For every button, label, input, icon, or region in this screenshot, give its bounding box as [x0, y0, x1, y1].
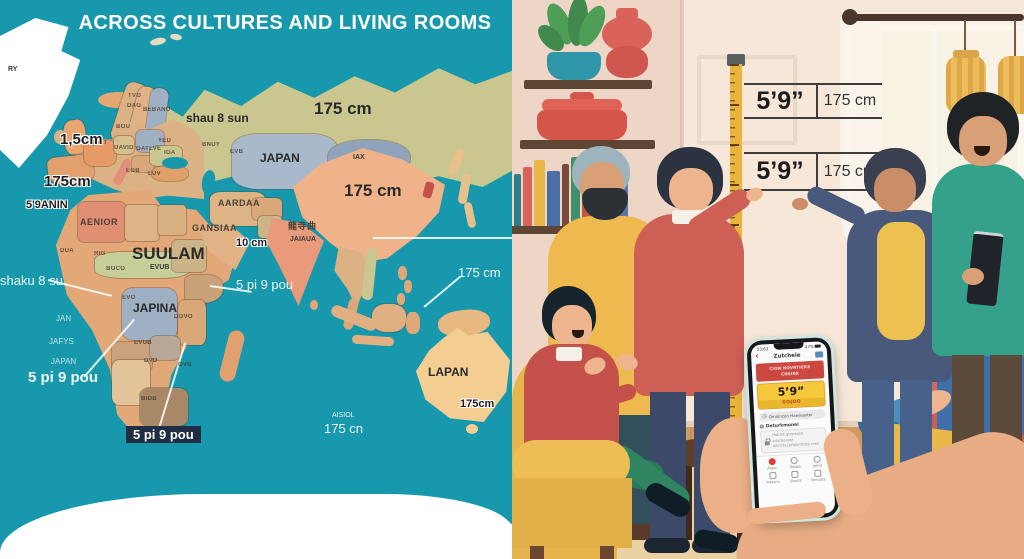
map-label: shaku 8 su	[0, 274, 63, 287]
reminder-text: Omainzen Haeseaster	[769, 412, 813, 419]
map-label: 175 cm	[314, 100, 372, 117]
woman-red-shoe	[644, 538, 690, 553]
clock-icon: ◷	[762, 414, 767, 419]
map-label: 175 cn	[324, 422, 363, 435]
map-label: RY	[8, 66, 17, 73]
map-label: AISIOL	[332, 412, 355, 419]
woman-red-face	[669, 168, 713, 212]
battery-icon	[815, 344, 821, 347]
map-micro-label: EVUB	[134, 340, 152, 346]
phone-nav-item[interactable]: Sleccats	[807, 469, 830, 482]
woman-blue-top	[877, 222, 925, 340]
map-micro-label: TVO	[128, 93, 141, 99]
info-card-text: Hokste gureaxert srtvrtiocete olknvbsj p…	[772, 431, 823, 450]
landmass-africa-patch	[158, 205, 186, 235]
phone-nav-icon	[769, 472, 776, 479]
map-micro-label: DAG	[127, 103, 141, 109]
map-micro-label: IGA	[164, 150, 176, 156]
landmass-philippines	[404, 280, 412, 293]
map-micro-label: EVB	[230, 149, 243, 155]
phone-frame: 13:63 47% ‹ Zutcheie CION NOVRTIERS CNSI…	[746, 337, 839, 521]
phone-nav-label: Ritasrin	[762, 479, 785, 484]
map-label: AENIOR	[80, 218, 118, 227]
seated-collar	[556, 347, 582, 361]
height-feet-label: 5’9”	[744, 157, 816, 186]
map-micro-label: BIDB	[141, 396, 157, 402]
map-micro-label: DVD	[144, 358, 158, 364]
map-micro-label: GATLVE	[136, 146, 161, 152]
armchair-base	[512, 478, 632, 548]
map-label: SUULAM	[132, 245, 205, 262]
landmass-philippines	[397, 293, 405, 305]
map-micro-label: LUV	[148, 171, 161, 177]
map-micro-label: OVB	[178, 362, 192, 368]
map-label: 1,5cm	[60, 132, 103, 147]
phone-nav-label: Sleccats	[807, 477, 830, 482]
lock-icon	[765, 441, 770, 445]
info-card[interactable]: Hokste gureaxert srtvrtiocete olknvbsj p…	[760, 427, 827, 454]
phone-nav-item[interactable]: Aracn	[761, 458, 784, 471]
landmass-africa-patch	[185, 275, 223, 303]
phone-nav-item[interactable]: Trelats	[783, 456, 806, 469]
map-label: JAIAUA	[290, 236, 316, 243]
woman-blue-hand	[792, 198, 808, 210]
phone-nav: AracnTrelatsJelnisRitasrinSlunitsSleccat…	[756, 452, 833, 485]
landmass-madagascar	[218, 329, 246, 383]
map-label: GANSIAA	[192, 224, 237, 233]
landmass-svalbard	[149, 36, 166, 46]
armchair-leg	[530, 546, 544, 559]
phone-nav-label: Trelats	[784, 464, 807, 469]
map-micro-label: YED	[158, 138, 171, 144]
map-micro-label: RIG	[94, 251, 106, 257]
lantern-string	[1014, 20, 1016, 58]
map-label: shau 8 sun	[186, 112, 249, 124]
landmass-tasmania	[466, 424, 478, 434]
red-pot	[537, 110, 627, 140]
teal-man-hand	[962, 268, 984, 285]
book-spine	[534, 160, 545, 226]
map-label: JAFYS	[49, 338, 74, 346]
map-micro-label: BEBANU	[143, 107, 170, 113]
vase	[606, 46, 648, 78]
map-label: 175 cm	[458, 266, 501, 279]
phone-screen: 13:63 47% ‹ Zutcheie CION NOVRTIERS CNSI…	[751, 341, 836, 517]
map-label: 5'9ANIN	[26, 200, 68, 211]
teal-man-face	[959, 116, 1007, 166]
lantern-cap	[953, 50, 979, 58]
woman-blue-face	[874, 168, 916, 212]
landmass-java	[352, 335, 395, 347]
curtain-rod	[852, 14, 1024, 21]
height-value-card: 5’9” GOJOO	[757, 380, 826, 410]
phone-nav-icon	[814, 456, 821, 463]
landmass-japan	[463, 201, 476, 228]
phone-nav-icon	[791, 457, 798, 464]
height-feet-label: 5’9”	[744, 87, 816, 116]
landmass-africa-patch	[150, 336, 180, 360]
leader-line	[424, 276, 461, 307]
phone-nav-icon	[768, 458, 775, 465]
phone-nav-label: Aracn	[761, 465, 784, 470]
book-spine	[547, 171, 560, 226]
map-micro-label: BOCO	[106, 266, 125, 272]
map-title: ACROSS CULTURES AND LIVING ROOMS	[70, 12, 500, 35]
height-marker-row: 5’9” 175 cm	[744, 83, 882, 119]
map-label: 175cm	[460, 399, 494, 410]
map-label: JAPAN	[51, 358, 76, 366]
landmass-borneo	[372, 304, 406, 332]
map-micro-label: DAVID	[114, 145, 134, 151]
phone-nav-item[interactable]: Slunits	[784, 470, 807, 483]
landmass-africa-patch	[125, 205, 159, 241]
map-label: JAPAN	[260, 152, 300, 164]
map-label: 175cm	[44, 174, 91, 189]
map-label: 10 cm	[236, 238, 267, 249]
smartphone: 13:63 47% ‹ Zutcheie CION NOVRTIERS CNSI…	[743, 334, 843, 524]
shelf-board	[524, 80, 652, 89]
phone-nav-icon	[814, 470, 821, 477]
map-label: 5 pi 9 pou	[236, 278, 293, 291]
app-title: Zutcheie	[759, 351, 816, 360]
map-micro-label: BNUY	[202, 142, 220, 148]
illustration: ACROSS CULTURES AND LIVING ROOMS TVODAGB…	[0, 0, 1024, 559]
living-room-panel: 5’9” 175 cm 5’9” 175 cm	[512, 0, 1024, 559]
reminder-pill[interactable]: ◷ Omainzen Haeseaster	[759, 409, 825, 421]
black-sea	[162, 157, 188, 169]
landmass-philippines	[398, 266, 407, 280]
map-label: IAX	[353, 154, 365, 161]
phone-nav-label: Slunits	[784, 478, 807, 483]
world-map-panel: ACROSS CULTURES AND LIVING ROOMS TVODAGB…	[0, 0, 512, 559]
landmass-africa-patch	[178, 300, 206, 345]
height-marker-row: 5’9” 175 cm	[744, 152, 882, 191]
map-label: EVUB	[150, 264, 169, 271]
status-battery: 47%	[805, 343, 821, 349]
alert-banner: CION NOVRTIERS CNSIDE	[756, 360, 825, 381]
leader-line	[373, 237, 512, 239]
landmass-sulawesi	[406, 312, 420, 334]
book-spine	[523, 167, 532, 226]
header-action-icon[interactable]	[815, 351, 823, 357]
height-cm-label: 175 cm	[816, 85, 882, 117]
map-label: 龍寺曲	[288, 222, 317, 231]
plant-pot	[547, 52, 601, 80]
curtain-rod-finial	[842, 9, 858, 25]
map-label: JAN	[56, 315, 71, 323]
section-icon	[760, 425, 764, 429]
map-label: 5 pi 9 pou	[28, 370, 98, 385]
landmass-antarctica	[0, 494, 512, 559]
phone-nav-label: Jelnis	[806, 463, 829, 468]
armchair-leg	[600, 546, 614, 559]
map-label: LAPAN	[428, 366, 468, 378]
map-label: AARDAA	[218, 199, 260, 208]
woman-blue-jeans	[862, 380, 894, 476]
landmass-srilanka	[310, 300, 318, 310]
phone-nav-icon	[792, 471, 799, 478]
landmass-india	[266, 218, 324, 306]
book-spine	[514, 174, 521, 226]
map-micro-label: EGB	[126, 168, 140, 174]
map-micro-label: DUA	[60, 248, 74, 254]
seated-face	[552, 305, 592, 347]
map-label: JAPINA	[133, 302, 177, 314]
map-label: 175 cm	[344, 182, 402, 199]
phone-nav-item[interactable]: Ritasrin	[761, 471, 784, 484]
book-spine	[562, 164, 569, 226]
map-label: 5 pi 9 pou	[126, 426, 201, 443]
map-micro-label: BOU	[116, 124, 130, 130]
woman-red-sweater	[634, 214, 744, 396]
